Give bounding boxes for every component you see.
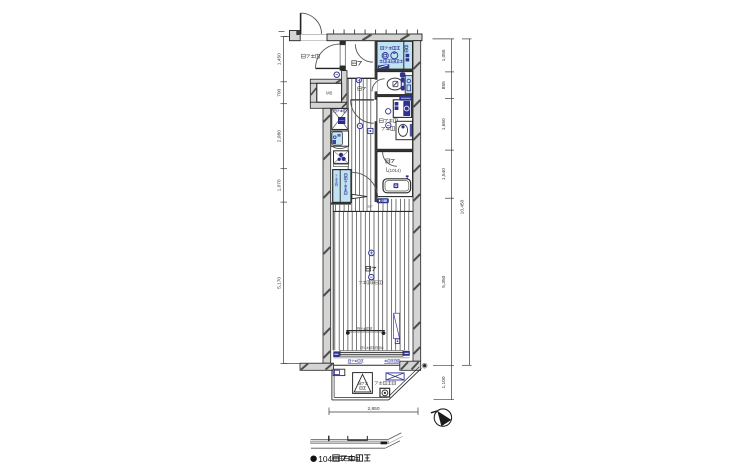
svg-text:1,100: 1,100 [441, 376, 447, 388]
svg-text:2,080: 2,080 [276, 130, 282, 142]
svg-text:104: 104 [318, 454, 332, 464]
svg-text:1,070: 1,070 [276, 179, 282, 191]
svg-text:700: 700 [276, 88, 282, 96]
svg-text:5,350: 5,350 [441, 275, 447, 287]
svg-text:5,170: 5,170 [276, 277, 282, 289]
svg-text:MB: MB [326, 91, 333, 96]
svg-text:10,450: 10,450 [460, 199, 466, 214]
svg-text:1,650: 1,650 [441, 118, 447, 130]
svg-text:855: 855 [441, 81, 447, 89]
svg-text:1,450: 1,450 [276, 53, 282, 65]
svg-text:1,055: 1,055 [441, 49, 447, 61]
svg-text:(1014): (1014) [388, 168, 401, 173]
svg-text:1,540: 1,540 [441, 168, 447, 180]
svg-text:2,850: 2,850 [367, 406, 379, 412]
